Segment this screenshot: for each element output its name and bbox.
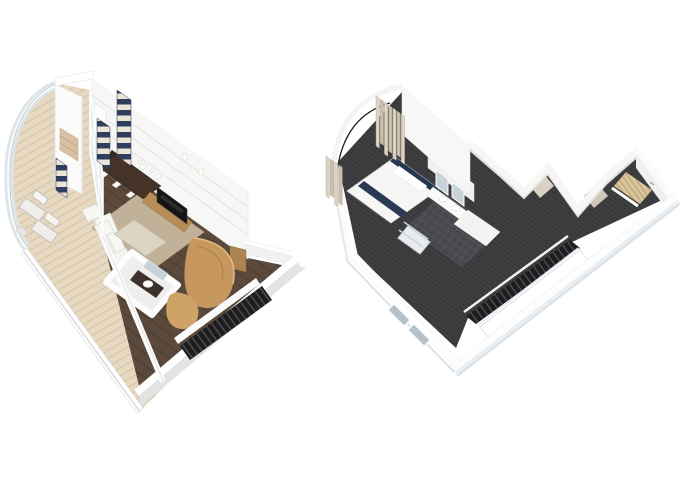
windbreak-cap bbox=[55, 71, 93, 86]
plan-upper-level bbox=[326, 84, 680, 377]
striped-curtain bbox=[97, 118, 110, 170]
powder-sink bbox=[143, 281, 153, 288]
sink bbox=[439, 196, 447, 202]
curtain-panel bbox=[397, 111, 400, 157]
floorplan-canvas bbox=[0, 0, 680, 486]
curtain-panel bbox=[339, 165, 342, 205]
curtain-panel bbox=[335, 162, 338, 206]
floorplan-illustration bbox=[0, 0, 680, 486]
curtain-panel bbox=[326, 156, 329, 198]
wall-sconce bbox=[199, 169, 203, 175]
curtain-panel bbox=[389, 105, 392, 153]
plan-lower-level bbox=[9, 71, 308, 413]
curtain-panel bbox=[393, 108, 396, 160]
curtain-panel bbox=[376, 96, 379, 148]
striped-curtain bbox=[117, 90, 131, 166]
curtain-panel bbox=[330, 159, 333, 197]
wall-sconce bbox=[183, 154, 187, 160]
pendant-light bbox=[150, 169, 153, 172]
curtain-panel bbox=[401, 114, 404, 164]
pendant-light bbox=[138, 160, 141, 163]
curtain-panel bbox=[380, 99, 383, 145]
curtain-panel bbox=[384, 102, 387, 156]
sink bbox=[452, 205, 460, 211]
